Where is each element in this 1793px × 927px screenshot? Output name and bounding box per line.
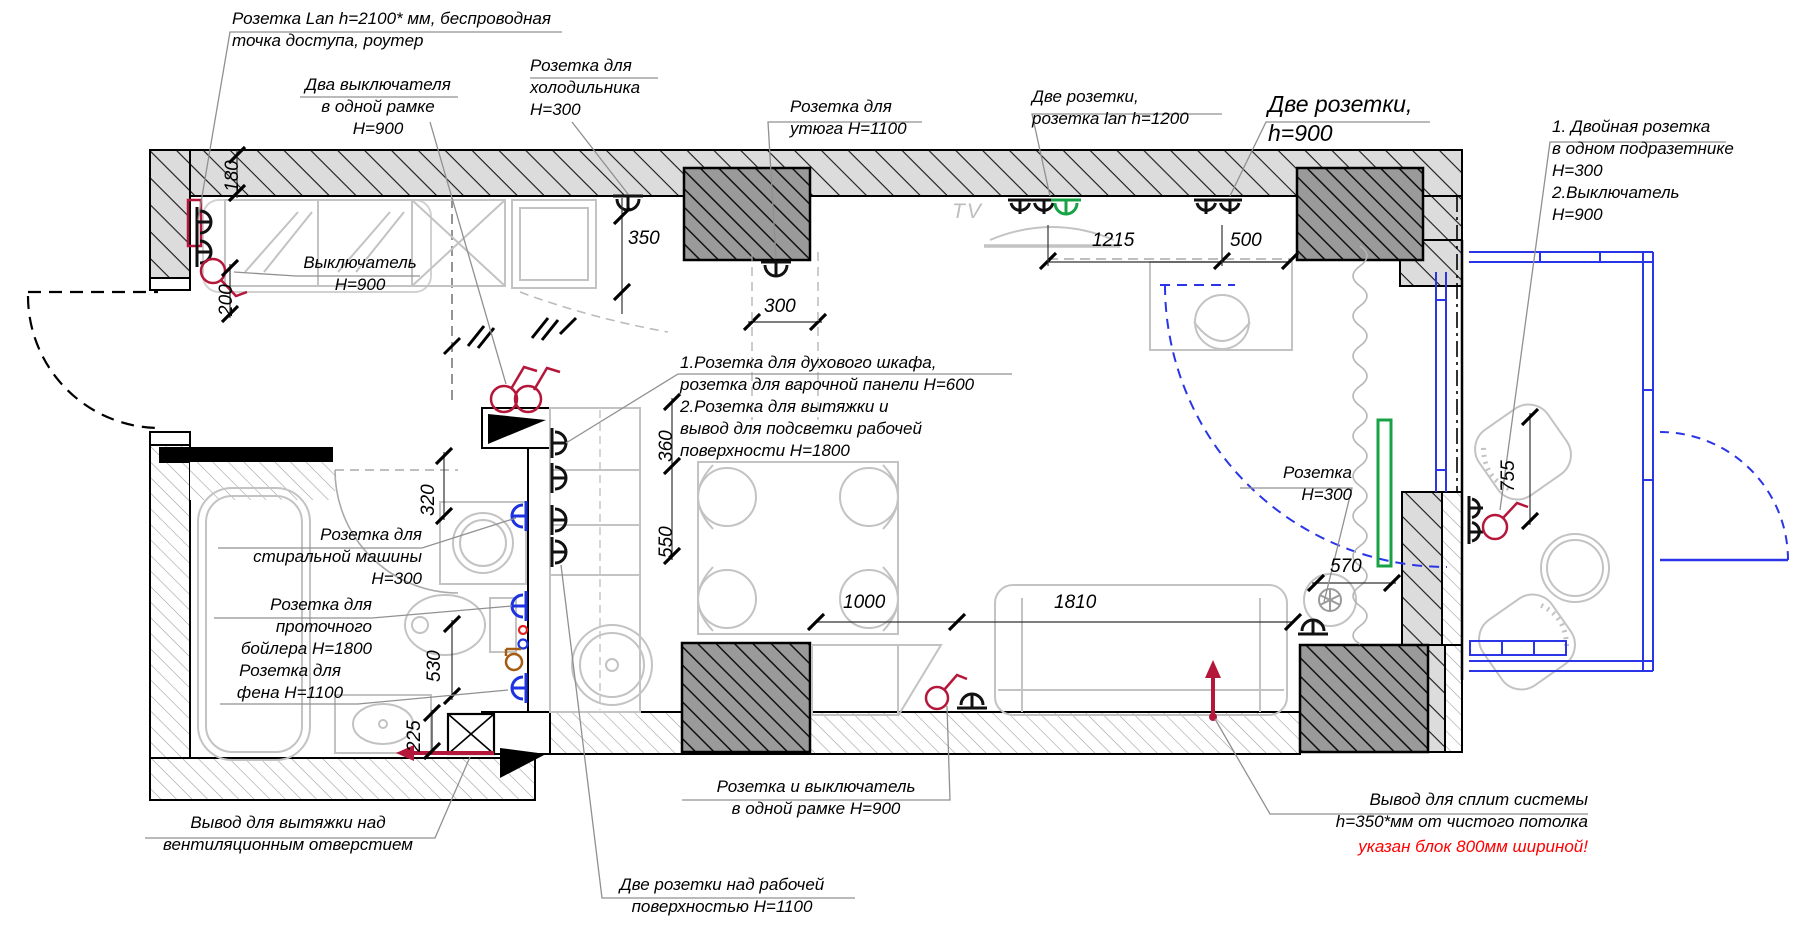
mirror-green-rect [1378, 420, 1391, 566]
annotation-socket-switch-frame: Розетка и выключатель в одной рамке H=90… [682, 776, 950, 820]
dim-530: 530 [424, 650, 446, 682]
socket-icon [761, 262, 791, 277]
shaft-top-middle [684, 168, 810, 260]
dim-360: 360 [656, 430, 678, 462]
dim-755: 755 [1498, 460, 1520, 492]
wall-bath-bottom [150, 758, 535, 800]
balcony-glazing [1436, 252, 1653, 671]
double-socket-icon [1008, 200, 1056, 214]
balcony-exit-door-swing [1660, 432, 1788, 560]
socket-icon [552, 537, 567, 567]
dim-570: 570 [1330, 556, 1362, 578]
annotation-washing-machine: Розетка для стиральной машины H=300 [225, 524, 422, 590]
shaft-bottom-right [1300, 645, 1428, 752]
annotation-socket-300: Розетка H=300 [1240, 462, 1352, 506]
desk [1150, 262, 1292, 350]
wall-right-block [1402, 492, 1442, 670]
hidden-wiring-marks [444, 318, 576, 354]
wall-bath-top [160, 448, 332, 462]
wet-socket-icon [511, 591, 526, 621]
double-socket-icon [1469, 496, 1483, 544]
dim-200: 200 [216, 284, 238, 316]
floor-plan-page: Розетка Lan h=2100* мм, беспроводная точ… [0, 0, 1793, 927]
curtain-line [1353, 246, 1367, 644]
dim-320: 320 [418, 484, 440, 516]
dim-300: 300 [764, 296, 796, 318]
wet-socket-icon [511, 673, 526, 703]
annotation-worktop-sockets: Две розетки над рабочей поверхностью H=1… [586, 874, 858, 918]
annotation-boiler: Розетка для проточного бойлера H=1800 [216, 594, 372, 660]
dim-1215: 1215 [1092, 230, 1134, 252]
dim-1000: 1000 [843, 592, 885, 614]
dim-500: 500 [1230, 230, 1262, 252]
double-socket-icon [1194, 200, 1242, 214]
annotation-lan-router: Розетка Lan h=2100* мм, беспроводная точ… [232, 8, 577, 52]
annotation-double-socket-switch: 1. Двойная розетка в одном подразетнике … [1552, 116, 1752, 226]
indicator-blue-icon [519, 640, 528, 649]
shaft-bottom-middle [682, 643, 810, 752]
annotation-two-sockets-lan: Две розетки, розетка lan h=1200 [1032, 86, 1232, 130]
dim-350: 350 [628, 228, 660, 250]
balcony-furniture [1466, 395, 1609, 699]
socket-icon [552, 463, 567, 493]
sofa [995, 585, 1287, 715]
fridge [512, 200, 596, 288]
toilet [405, 595, 516, 655]
entrance-door-swing [28, 296, 160, 428]
socket-icon [957, 693, 987, 708]
lan-socket-icon [1051, 200, 1081, 215]
wet-socket-icon [511, 501, 526, 531]
annotation-split-system: Вывод для сплит системы h=350*мм от чист… [1286, 789, 1588, 833]
double-switch-icon [491, 367, 560, 412]
balcony-table [1541, 534, 1609, 602]
wall-partition-kitchen-bath [528, 448, 550, 712]
socket-icon [552, 428, 567, 458]
socket-icon [1298, 619, 1328, 634]
annotation-iron-socket: Розетка для утюга H=1100 [790, 96, 940, 140]
socket-icon [552, 505, 567, 535]
label-tv: TV [952, 200, 983, 224]
switch-icon [1483, 503, 1528, 539]
annotation-two-switches: Два выключателя в одной рамке H=900 [294, 74, 462, 140]
dim-550: 550 [656, 526, 678, 558]
dim-225: 225 [404, 720, 426, 752]
wall-left-top [150, 150, 190, 285]
annotation-fridge-socket: Розетка для холодильника H=300 [530, 55, 675, 121]
annotation-split-warning: указан блок 800мм шириной! [1286, 836, 1588, 858]
indicator-red-icon [519, 626, 527, 634]
annotation-hair-dryer: Розетка для фена H=1100 [222, 660, 358, 704]
annotation-switch-900: Выключатель H=900 [294, 252, 426, 296]
wall-main-bottom [535, 712, 1300, 754]
dim-1810: 1810 [1054, 592, 1096, 614]
floor-fan [1304, 574, 1356, 626]
dim-180: 180 [222, 160, 244, 192]
annotation-oven-hood: 1.Розетка для духового шкафа, розетка дл… [680, 352, 1025, 462]
wall-left-bath [150, 445, 190, 800]
annotation-vent-hood: Вывод для вытяжки над вентиляционным отв… [140, 812, 436, 856]
annotation-two-sockets-900: Две розетки, h=900 [1268, 90, 1438, 148]
